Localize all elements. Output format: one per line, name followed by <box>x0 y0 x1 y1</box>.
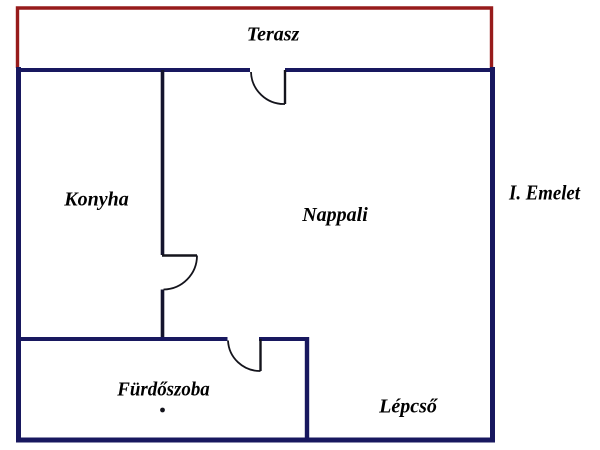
svg-text:Nappali: Nappali <box>301 204 368 226</box>
svg-text:Konyha: Konyha <box>63 189 128 211</box>
svg-text:I. Emelet: I. Emelet <box>508 181 581 205</box>
svg-text:Fürdőszoba: Fürdőszoba <box>116 379 209 401</box>
svg-text:Terasz: Terasz <box>247 24 300 46</box>
svg-text:Lépcső: Lépcső <box>378 396 439 418</box>
